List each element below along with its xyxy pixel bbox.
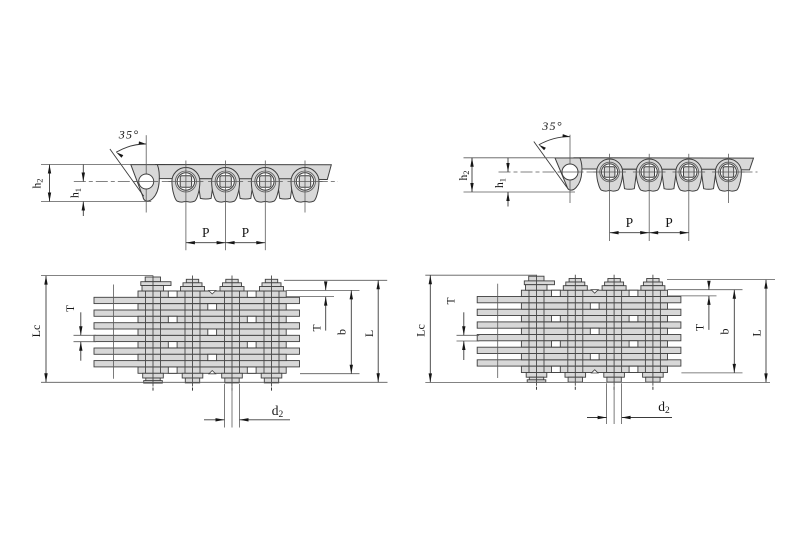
svg-text:b: b [718, 329, 732, 335]
svg-text:P: P [242, 225, 250, 240]
svg-text:T: T [446, 297, 458, 304]
svg-text:L: L [362, 330, 376, 337]
svg-text:35°: 35° [118, 128, 139, 142]
svg-text:T: T [311, 324, 323, 331]
svg-text:L: L [750, 329, 764, 336]
svg-text:P: P [626, 215, 634, 230]
svg-text:Lc: Lc [413, 324, 427, 337]
svg-text:35°: 35° [541, 119, 562, 133]
svg-text:P: P [665, 215, 673, 230]
svg-text:T: T [65, 305, 77, 312]
svg-text:P: P [202, 225, 210, 240]
svg-text:Lc: Lc [29, 325, 43, 338]
svg-text:T: T [695, 324, 707, 331]
svg-text:b: b [334, 329, 348, 335]
